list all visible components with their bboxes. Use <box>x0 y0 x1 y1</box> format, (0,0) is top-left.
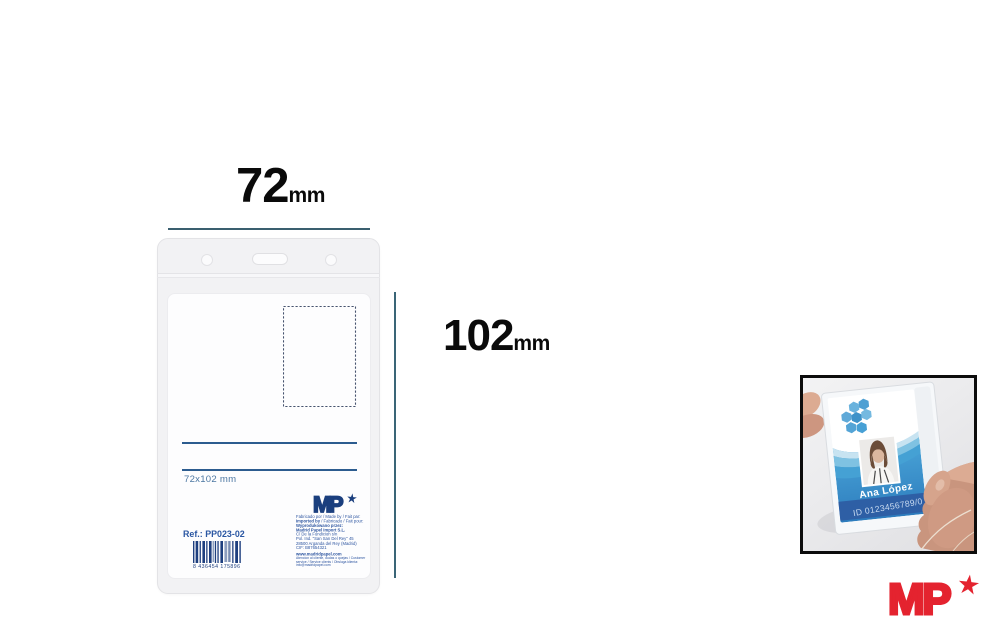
svg-text:MP: MP <box>888 575 950 618</box>
svg-text:MP: MP <box>313 492 343 514</box>
